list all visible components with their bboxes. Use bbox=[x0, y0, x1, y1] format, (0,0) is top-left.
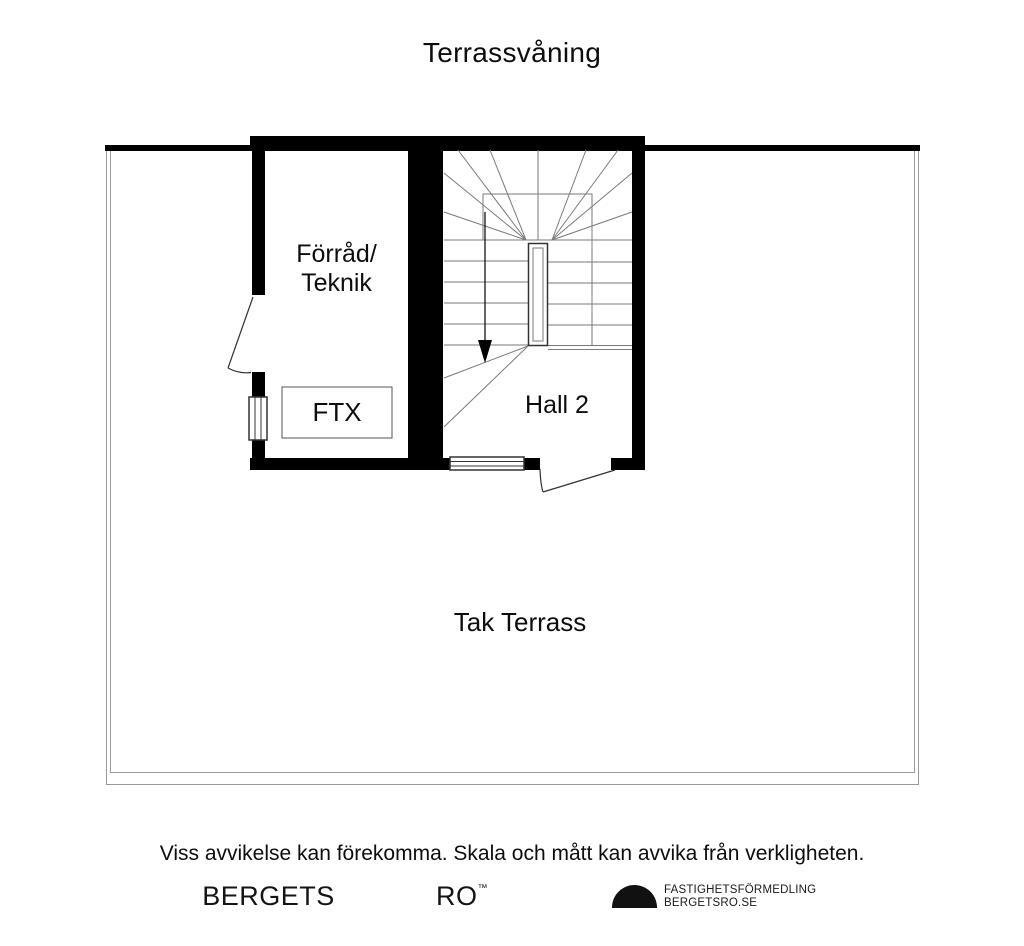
page-title: Terrassvåning bbox=[0, 37, 1024, 69]
wall-bottom-storage bbox=[250, 458, 450, 470]
room-label-ftx: FTX bbox=[282, 387, 392, 438]
wall-bottom-pier bbox=[524, 458, 540, 470]
wall-left-lower bbox=[252, 440, 265, 458]
room-label-terrace: Tak Terrass bbox=[420, 607, 620, 638]
stair-treads-right bbox=[548, 240, 632, 350]
wall-top bbox=[250, 136, 645, 150]
wall-middle bbox=[408, 150, 443, 458]
room-label-storage: Förråd/ Teknik bbox=[265, 240, 408, 298]
wall-right bbox=[632, 150, 645, 470]
floorplan-page: Terrassvåning Förråd/ Teknik FTX Hall 2 … bbox=[0, 0, 1024, 946]
trademark-symbol: ™ bbox=[478, 883, 488, 894]
wall-bottom-right-stub bbox=[611, 458, 645, 470]
floor-plan bbox=[0, 0, 1024, 946]
brand-ro: RO™ bbox=[436, 881, 506, 912]
stair-direction-arrow bbox=[478, 212, 492, 363]
staircase bbox=[444, 150, 632, 427]
window-hall bbox=[450, 457, 524, 470]
agency-line2: BERGETSRO.SE bbox=[664, 897, 884, 910]
disclaimer-text: Viss avvikelse kan förekomma. Skala och … bbox=[0, 842, 1024, 866]
wall-left-upper bbox=[252, 150, 265, 295]
room-label-hall: Hall 2 bbox=[500, 391, 614, 420]
door-hall bbox=[540, 469, 615, 492]
wall-left-mid bbox=[252, 372, 265, 397]
agency-text: FASTIGHETSFÖRMEDLING BERGETSRO.SE bbox=[664, 884, 884, 910]
window-storage bbox=[249, 397, 267, 440]
agency-line1: FASTIGHETSFÖRMEDLING bbox=[664, 884, 884, 897]
stair-treads-left bbox=[444, 261, 528, 345]
stair-newel bbox=[529, 244, 548, 346]
door-storage bbox=[228, 297, 253, 373]
brand-bergets: BERGETS bbox=[196, 881, 341, 912]
brand-ro-text: RO bbox=[436, 881, 478, 911]
